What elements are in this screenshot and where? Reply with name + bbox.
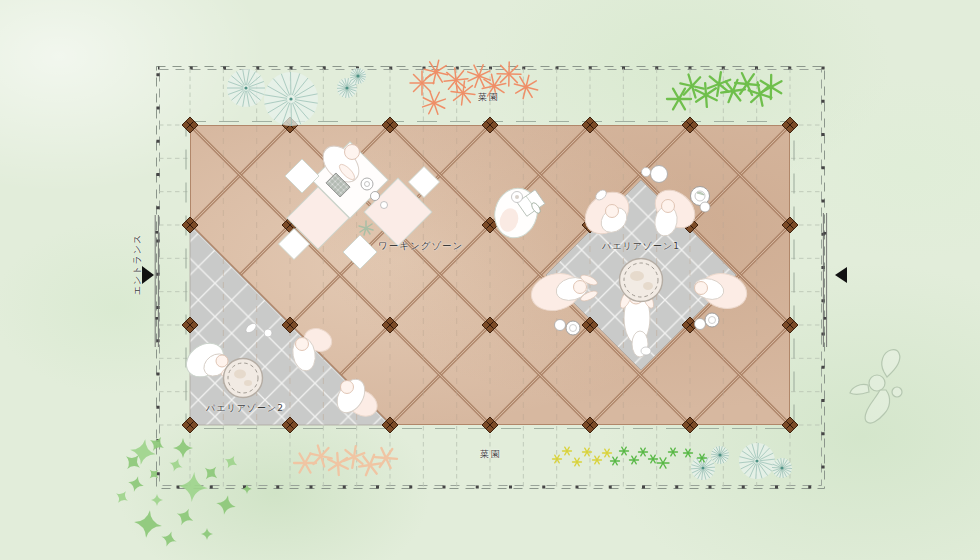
sparkle-icon: [177, 471, 210, 504]
flower-icon: [573, 458, 582, 466]
diner-head: [662, 200, 675, 213]
cup: [361, 178, 373, 190]
plate: [651, 166, 668, 183]
plant-icon: [328, 453, 348, 475]
entrance-arrow-right: [835, 267, 847, 283]
sparkle-icon: [159, 529, 179, 549]
plant-icon: [423, 92, 446, 115]
plant-icon: [444, 68, 468, 92]
plan-graphics: [0, 0, 980, 560]
sparkle-icon: [132, 508, 164, 540]
flowers-layer: [553, 447, 707, 468]
cup: [700, 202, 710, 212]
diner-head: [695, 282, 708, 295]
cup: [381, 202, 388, 209]
zone-label-working: ワーキングゾーン: [378, 240, 463, 253]
tree-icon: [772, 458, 792, 478]
diner-head: [341, 381, 354, 394]
person-outline-sketch: [850, 350, 902, 423]
plant-icon: [497, 62, 521, 86]
sparkle-icon: [173, 505, 197, 529]
diner-head: [574, 281, 587, 294]
cup: [642, 168, 651, 177]
seam-line: [0, 125, 190, 425]
garden-label-bottom: 菜園: [480, 448, 502, 461]
sparkle-icon: [112, 487, 131, 506]
orange-plants-layer: [410, 60, 538, 114]
sparkle-icon: [167, 456, 185, 474]
seated-person-head: [345, 145, 360, 160]
cup: [264, 329, 272, 337]
plant-icon: [310, 445, 331, 466]
flower-icon: [603, 449, 612, 457]
sparkle-icon: [200, 462, 223, 485]
zone-label-paella2: パエリアゾーン2: [206, 402, 284, 415]
sparkle-icon: [201, 528, 213, 540]
flower-icon: [611, 457, 620, 465]
flower-icon: [620, 447, 629, 455]
flower-icon: [563, 447, 572, 455]
seam-line: [0, 125, 190, 425]
plate: [695, 319, 706, 330]
flower-icon: [593, 456, 602, 464]
tree-icon: [739, 443, 775, 479]
green-plants-layer: [667, 72, 781, 109]
sparkle-icon: [214, 493, 238, 517]
plant-icon: [294, 453, 316, 472]
plant-icon: [680, 75, 703, 98]
entrance-label: エントランス: [131, 228, 144, 302]
sparkle-stars-layer: [112, 433, 252, 549]
paella-pan: [224, 359, 263, 398]
peach-plants-layer: [294, 445, 397, 475]
flower-icon: [684, 449, 693, 457]
seam-line: [0, 125, 190, 425]
flower-icon: [583, 448, 592, 456]
diner-head: [296, 338, 309, 351]
plate: [705, 313, 719, 327]
plant-icon: [468, 65, 491, 88]
flower-icon: [630, 456, 639, 464]
plant-icon: [424, 60, 447, 83]
sparkle-icon: [173, 438, 193, 458]
zone-label-paella1: パエリアゾーン1: [602, 240, 680, 253]
seam-line: [0, 125, 190, 425]
tree-icon: [350, 68, 366, 84]
plant-icon: [451, 81, 475, 105]
tree-icon: [227, 69, 265, 107]
garden-label-top: 菜園: [478, 91, 500, 104]
diner-head: [216, 355, 228, 367]
plate: [555, 320, 566, 331]
flower-icon: [649, 455, 658, 463]
tree-icon: [711, 446, 729, 464]
sparkle-icon: [126, 474, 146, 494]
flower-icon: [657, 458, 669, 468]
plate: [566, 321, 580, 335]
bowl: [641, 347, 651, 355]
floor-plan: 菜園 菜園 ワーキングゾーン パエリアゾーン1 パエリアゾーン2 エントランス: [0, 0, 980, 560]
cup: [371, 192, 380, 201]
flower-icon: [639, 448, 648, 456]
diner-head: [606, 205, 619, 218]
tree-icon: [264, 72, 318, 126]
flower-icon: [669, 448, 678, 456]
sparkle-icon: [151, 494, 163, 506]
plant-icon: [514, 75, 537, 98]
sparkle-icon: [222, 453, 241, 472]
entrance-arrow-left: [142, 266, 154, 284]
